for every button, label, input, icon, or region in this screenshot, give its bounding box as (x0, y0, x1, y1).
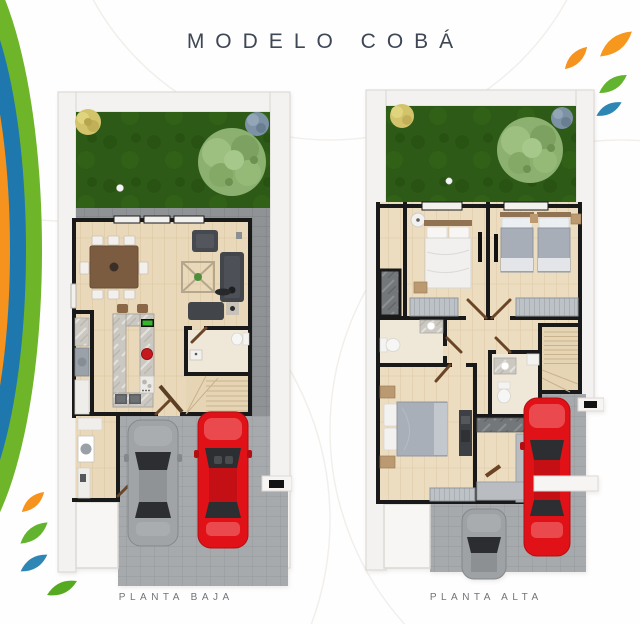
bar-stool (137, 304, 148, 313)
toilet-icon (498, 389, 511, 403)
planta-alta-floorplan (364, 86, 604, 588)
plant-icon (194, 273, 202, 281)
headboard (424, 220, 472, 226)
ball-icon (117, 185, 124, 192)
red-car (194, 412, 252, 548)
garden (75, 109, 270, 208)
bar-stool (117, 304, 128, 313)
toilet-icon (232, 333, 243, 345)
stove (140, 376, 154, 393)
nightstand (380, 386, 395, 398)
nightstand (530, 214, 538, 223)
toilet-icon (386, 339, 400, 352)
gate-handle (269, 480, 284, 488)
round-sink (142, 349, 153, 360)
loveseat (188, 302, 224, 320)
roof-ledge (534, 476, 598, 491)
page-background: MODELO COBÁ (0, 0, 640, 624)
tree-icon (198, 128, 266, 196)
closet (430, 488, 475, 501)
closet (410, 298, 458, 316)
planta-baja-floorplan (56, 86, 292, 588)
planta-alta-label: PLANTA ALTA (364, 592, 604, 603)
gray-car (124, 420, 182, 546)
porch (76, 502, 118, 568)
nightstand (571, 214, 581, 224)
closet (516, 298, 578, 316)
bush-blue-icon (551, 107, 573, 129)
ball-icon (446, 178, 452, 184)
nightstand (380, 456, 395, 468)
planta-baja-label: PLANTA BAJA (56, 592, 292, 603)
shower-tray (527, 354, 539, 365)
bed-white (425, 238, 471, 288)
tv-icon (478, 232, 482, 262)
side-path (252, 222, 270, 416)
utility-corridor (75, 318, 89, 414)
tv-cabinet (459, 410, 472, 456)
tv-icon (494, 234, 498, 262)
bush-yellow-icon (75, 109, 101, 135)
tree-icon (497, 117, 563, 183)
garden (386, 104, 576, 202)
nightstand (414, 282, 427, 293)
model-title: MODELO COBÁ (0, 30, 640, 54)
cutting-board (143, 321, 153, 326)
bush-yellow-icon (390, 104, 414, 128)
silver-car (462, 509, 506, 579)
shower (380, 270, 400, 316)
porch (384, 504, 430, 568)
gate-handle (584, 401, 597, 408)
